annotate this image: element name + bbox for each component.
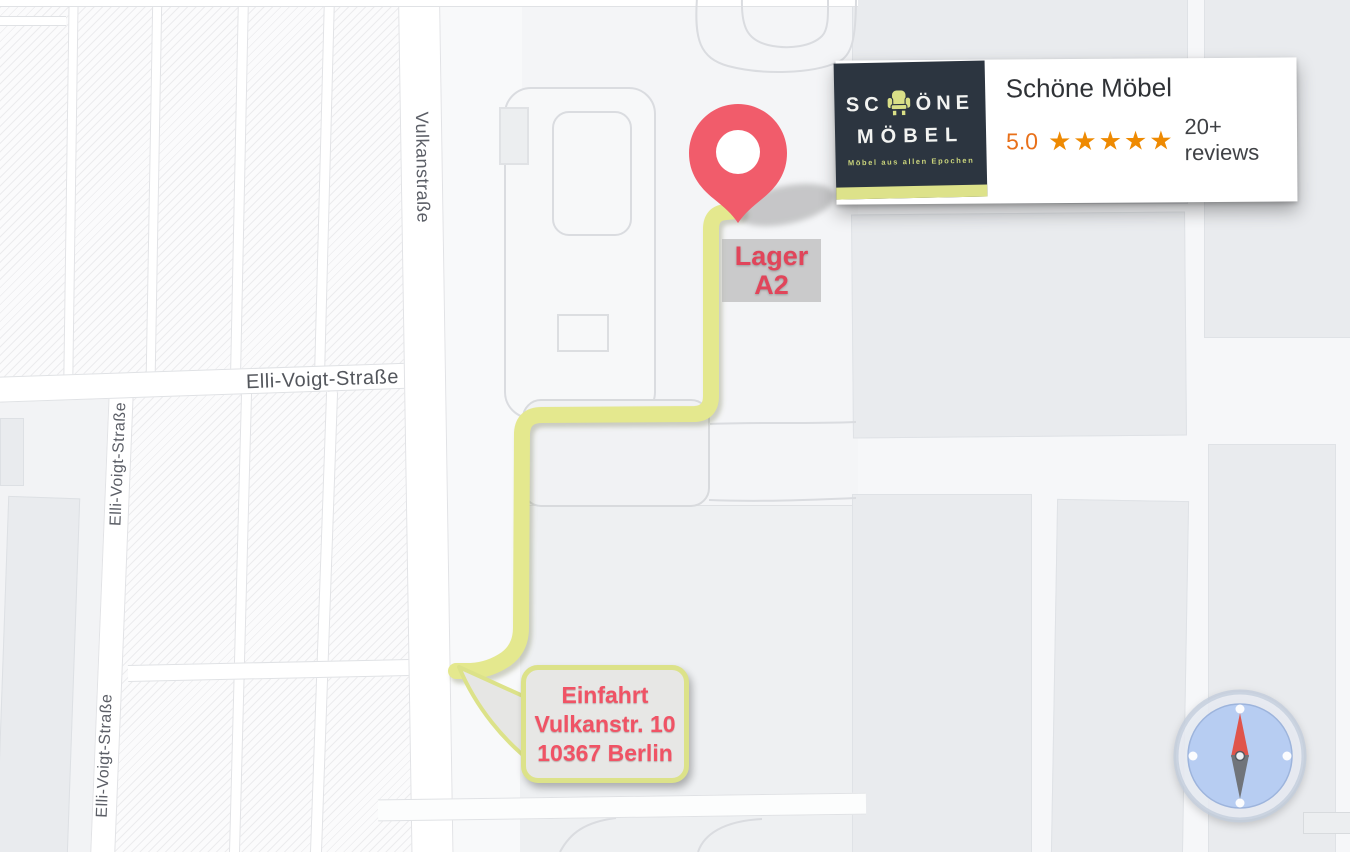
logo-wordmark-2: MÖBEL xyxy=(857,124,965,149)
logo-text-post: ÖNE xyxy=(915,91,974,115)
business-name: Schöne Möbel xyxy=(1006,71,1297,104)
building xyxy=(1303,812,1350,834)
rating-value: 5.0 xyxy=(1006,128,1038,155)
building xyxy=(1051,499,1189,852)
map-canvas[interactable]: Elli-Voigt-Straße Elli-Voigt-Straße Elli… xyxy=(0,0,1350,852)
building xyxy=(851,212,1187,439)
compass-icon[interactable] xyxy=(1170,686,1310,826)
business-card[interactable]: SC ÖNE MÖBEL Möbel aus allen Epochen Sch… xyxy=(836,57,1298,204)
star-rating-icons: ★★★★★ xyxy=(1048,127,1175,154)
warehouse-label-line: Lager xyxy=(735,242,809,271)
business-info: Schöne Möbel 5.0 ★★★★★ 20+ reviews xyxy=(1006,71,1298,167)
building xyxy=(0,418,24,486)
entrance-callout: Einfahrt Vulkanstr. 10 10367 Berlin xyxy=(521,665,689,783)
reviews-link[interactable]: 20+ reviews xyxy=(1184,113,1297,166)
warehouse-label: Lager A2 xyxy=(722,239,821,302)
street-label-elli-voigt: Elli-Voigt-Straße xyxy=(107,402,130,527)
callout-line: Vulkanstr. 10 xyxy=(534,710,675,739)
building xyxy=(0,496,80,852)
callout-line: Einfahrt xyxy=(562,681,649,710)
callout-line: 10367 Berlin xyxy=(537,739,673,768)
street-label-vulkanstrasse: Vulkanstraße xyxy=(411,111,434,223)
rating-row: 5.0 ★★★★★ 20+ reviews xyxy=(1006,113,1297,167)
business-logo: SC ÖNE MÖBEL Möbel aus allen Epochen xyxy=(834,61,988,200)
logo-wordmark: SC ÖNE xyxy=(846,89,975,120)
lane xyxy=(0,16,66,26)
warehouse-label-line: A2 xyxy=(754,271,789,300)
street-label-elli-voigt: Elli-Voigt-Straße xyxy=(94,693,117,818)
logo-accent-strip xyxy=(836,184,987,199)
logo-text-pre: SC xyxy=(846,93,884,117)
armchair-icon xyxy=(885,90,913,116)
logo-tagline: Möbel aus allen Epochen xyxy=(848,156,975,168)
building xyxy=(852,494,1032,852)
yard-parking-strip xyxy=(440,0,522,852)
lane xyxy=(0,0,858,7)
